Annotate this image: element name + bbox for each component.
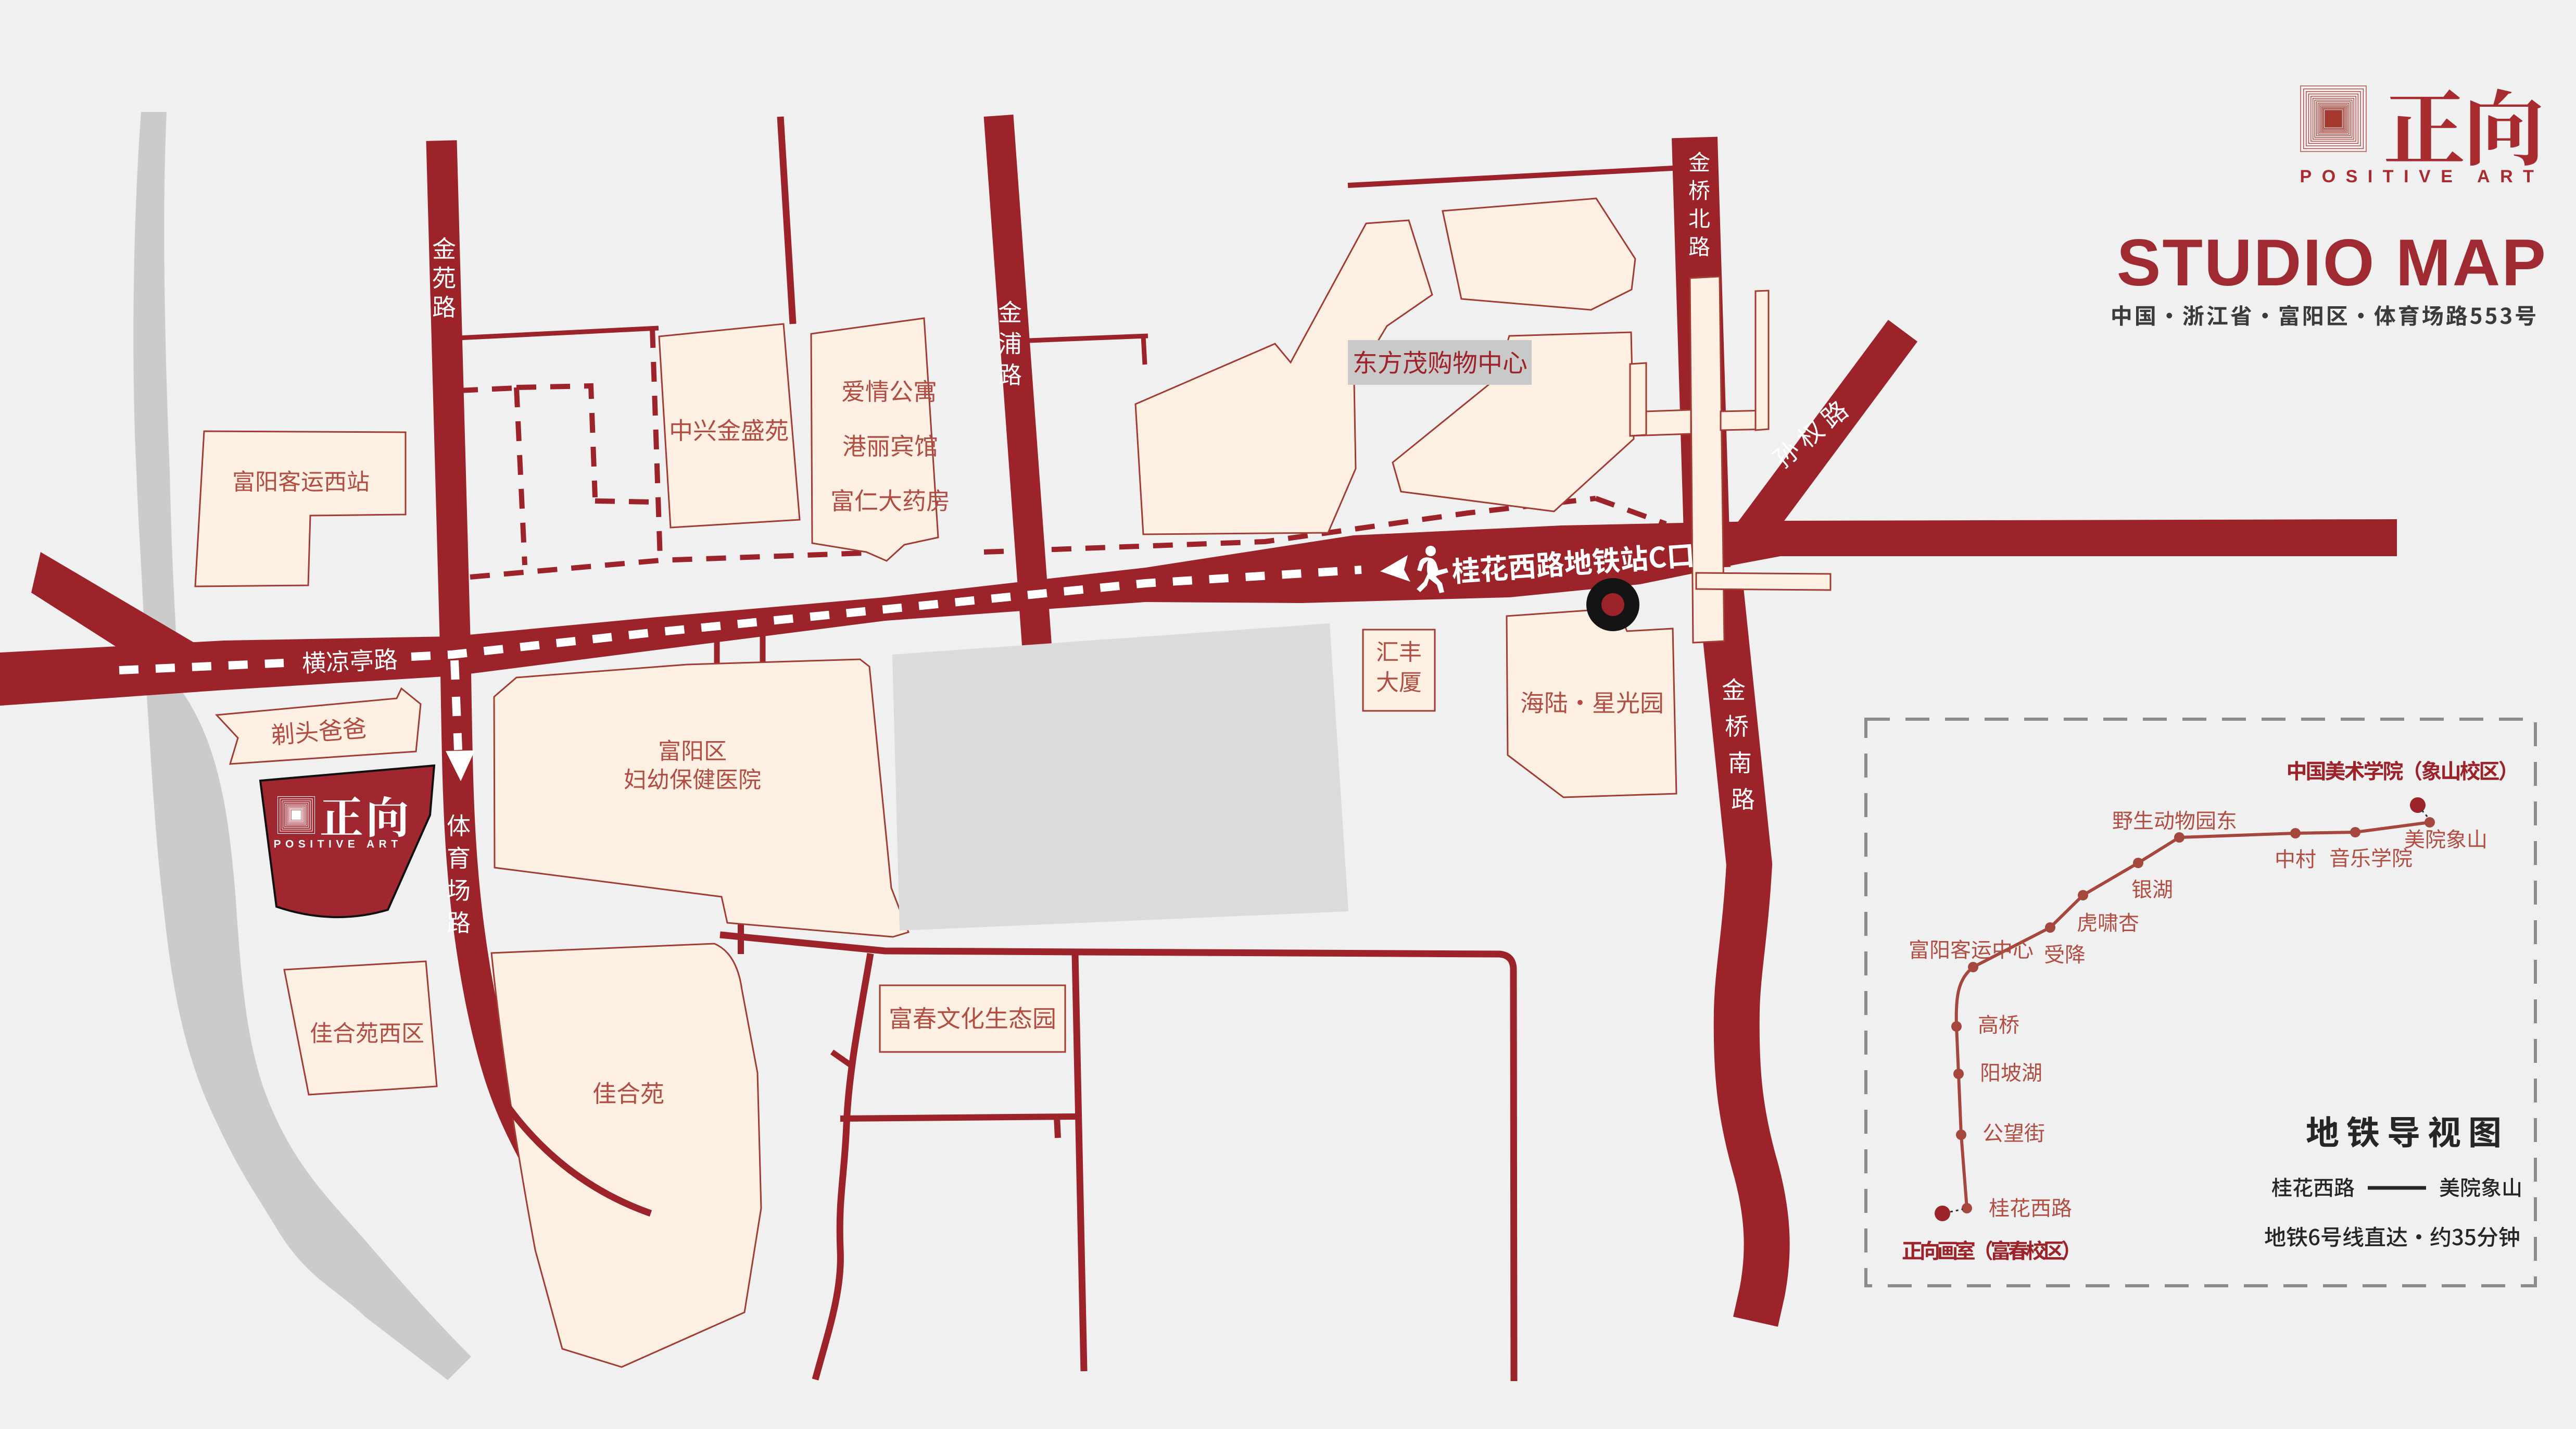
svg-text:POSITIVE ART: POSITIVE ART [273,838,402,850]
svg-text:STUDIO MAP: STUDIO MAP [2117,225,2547,299]
svg-text:POSITIVE ART: POSITIVE ART [2300,167,2544,186]
